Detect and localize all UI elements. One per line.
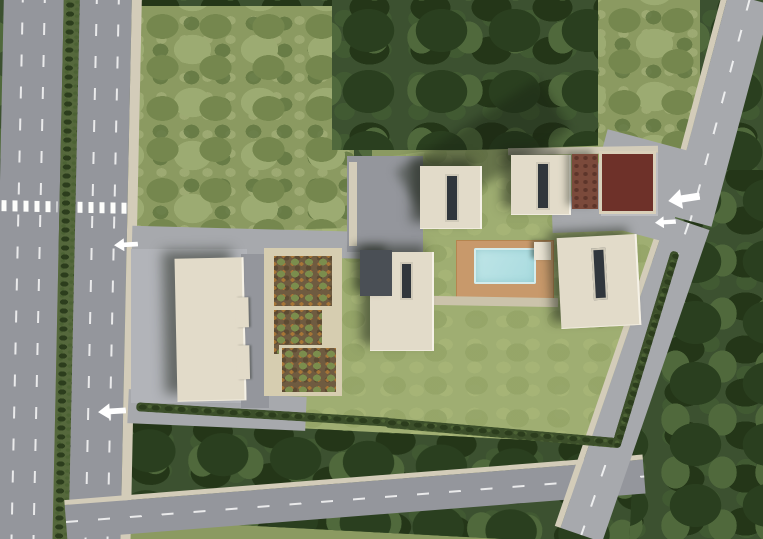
label-kapali-otopark-girisi-left <box>114 237 146 252</box>
label-acik-otopark-girisi <box>98 402 134 420</box>
decor-layer <box>0 0 763 539</box>
entrance-label <box>584 223 648 226</box>
arrow-left-icon <box>655 216 677 229</box>
site-plan-render <box>0 0 763 539</box>
arrow-left-icon <box>98 402 127 420</box>
arrow-left-icon <box>114 238 139 252</box>
